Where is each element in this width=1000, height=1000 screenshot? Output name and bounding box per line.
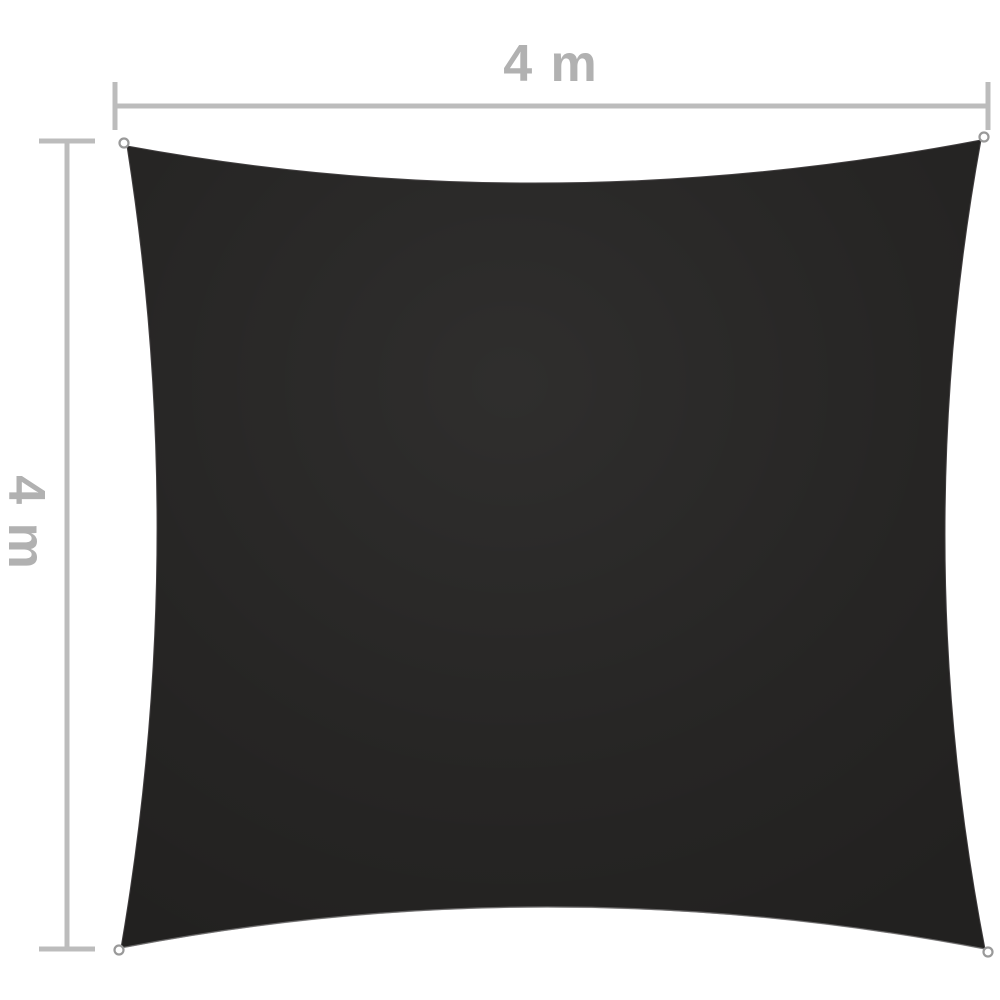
grommet-bottom-right-icon (984, 948, 993, 957)
height-label: 4 m (0, 475, 55, 571)
grommet-bottom-left-icon (115, 946, 124, 955)
shade-sail-dimension-diagram: 4 m 4 m (0, 0, 1000, 1000)
width-label: 4 m (503, 35, 599, 93)
grommet-top-right-icon (980, 133, 989, 142)
product-image: 4 m 4 m (0, 0, 1000, 1000)
grommet-top-left-icon (120, 139, 129, 148)
sail-sheen-overlay (121, 140, 985, 949)
